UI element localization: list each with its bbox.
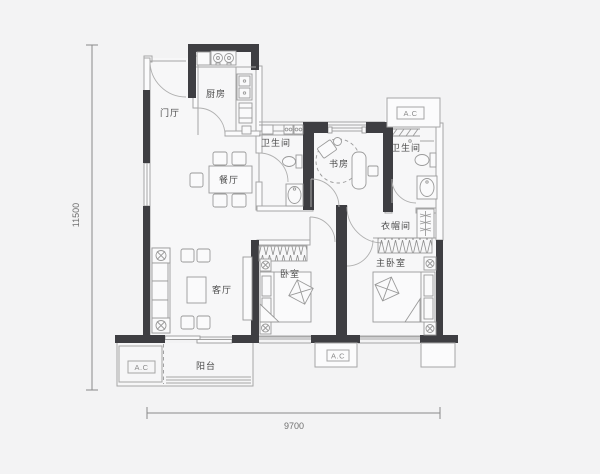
room-label-dining: 餐厅 bbox=[219, 174, 239, 185]
floor-plan-drawing: A.C A.C A.C 门厅 厨房 餐厅 卫生间 书房 卫生间 衣帽间 卧室 主… bbox=[0, 0, 600, 474]
room-label-master-bedroom: 主卧室 bbox=[376, 257, 406, 268]
bed bbox=[260, 272, 313, 322]
floor-plan-page: A.C A.C A.C 门厅 厨房 餐厅 卫生间 书房 卫生间 衣帽间 卧室 主… bbox=[0, 0, 600, 474]
dimension-bottom: 9700 bbox=[147, 407, 440, 431]
room-label-bath1: 卫生间 bbox=[261, 137, 291, 148]
bed bbox=[373, 272, 435, 322]
washbasin bbox=[286, 184, 303, 206]
apartment-footprint bbox=[117, 44, 441, 386]
bedroom-furniture bbox=[259, 246, 313, 334]
room-label-entry: 门厅 bbox=[160, 107, 180, 118]
cloakroom-rack bbox=[417, 209, 434, 238]
ac-label-bottom-left: A.C bbox=[134, 363, 148, 372]
room-label-bedroom: 卧室 bbox=[280, 268, 300, 279]
stove bbox=[211, 51, 236, 65]
ac-box-bottom-middle: A.C bbox=[315, 343, 357, 367]
dimension-height-value: 11500 bbox=[71, 203, 81, 227]
platform-bottom-right bbox=[421, 343, 455, 367]
ac-label-top-right: A.C bbox=[403, 109, 417, 118]
room-label-living: 客厅 bbox=[212, 284, 232, 295]
room-label-cloakroom: 衣帽间 bbox=[381, 220, 411, 231]
tv-cabinet bbox=[243, 257, 252, 320]
room-label-balcony: 阳台 bbox=[196, 360, 216, 371]
room-label-kitchen: 厨房 bbox=[206, 88, 226, 99]
coffee-table bbox=[187, 277, 206, 303]
sofa bbox=[152, 248, 170, 333]
toilet bbox=[415, 153, 436, 167]
dimension-left: 11500 bbox=[71, 45, 98, 390]
ac-box-top-right: A.C bbox=[387, 98, 440, 127]
dimension-width-value: 9700 bbox=[284, 421, 304, 431]
wardrobe bbox=[378, 238, 432, 253]
room-label-bath2: 卫生间 bbox=[391, 142, 421, 153]
study-desk bbox=[352, 152, 366, 189]
master-bedroom-furniture bbox=[373, 238, 436, 335]
toilet bbox=[283, 155, 303, 168]
study-stool bbox=[368, 166, 378, 176]
ac-label-bottom-middle: A.C bbox=[331, 352, 345, 361]
washbasin bbox=[417, 176, 437, 199]
kitchen-sink bbox=[237, 74, 252, 100]
room-label-study: 书房 bbox=[329, 158, 349, 169]
